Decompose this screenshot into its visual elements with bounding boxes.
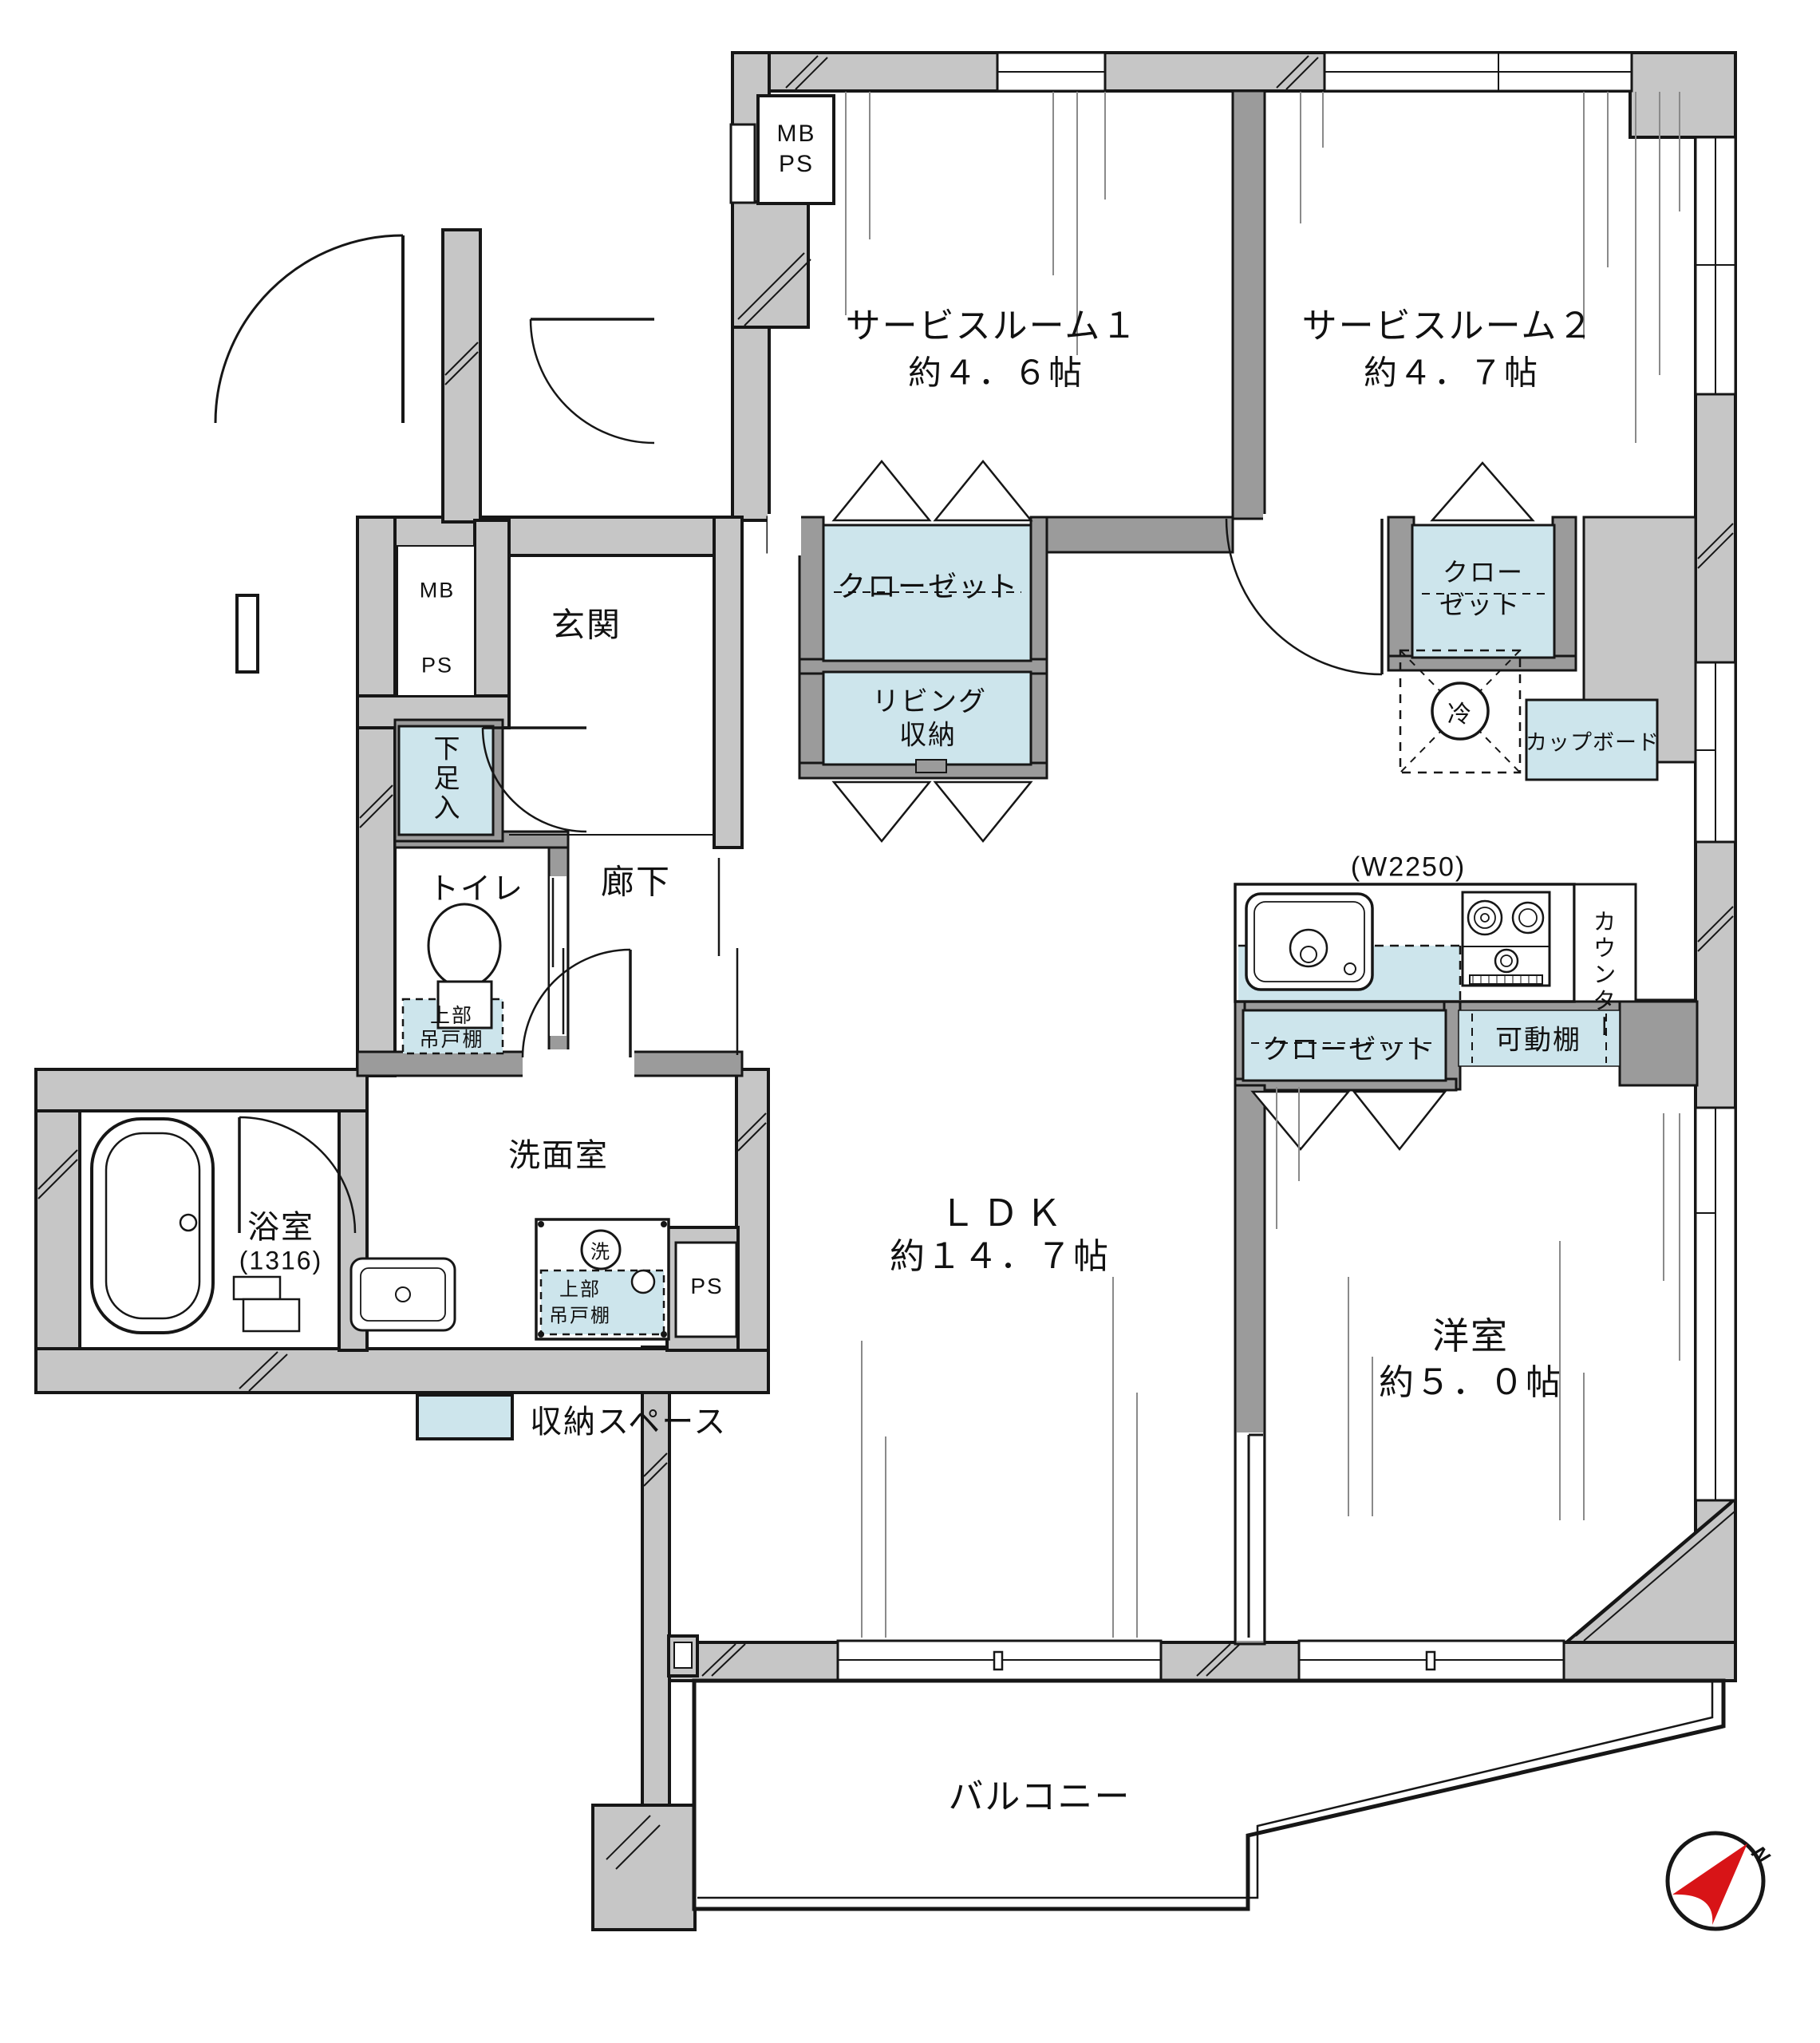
wall-bath-bottom (36, 1349, 768, 1393)
wall-bottom (642, 1642, 1735, 1681)
stove (1463, 892, 1550, 986)
room-label-washroom: 洗面室 (508, 1129, 609, 1176)
washer-cabinet-label-1: 上部 (559, 1274, 601, 1302)
mb-label-entry: MB (420, 579, 456, 603)
bath-faucet (234, 1277, 280, 1299)
room-label-balcony: バルコニー (948, 1768, 1131, 1819)
closet-sr2-label-2: ゼット (1439, 585, 1521, 622)
room-label-bathroom: 浴室 (247, 1201, 314, 1247)
compass (1668, 1833, 1763, 1929)
room-label-entrance: 玄関 (551, 599, 622, 647)
balcony-structure (694, 1681, 1723, 1909)
wall-porch (443, 230, 480, 522)
closet-sr1-label: クローゼット (837, 563, 1019, 605)
room-label-hallway: 廊下 (601, 856, 671, 904)
room-label-western: 洋室 (1432, 1307, 1509, 1360)
room-size-western: 約５．０帖 (1379, 1353, 1562, 1405)
wall-column (593, 1805, 695, 1930)
room-label-service-room-2: サービスルーム２ (1302, 297, 1595, 348)
mbps-box-top (758, 96, 834, 204)
vanity-basin (351, 1259, 455, 1330)
wall-sr1-sr2 (1233, 91, 1265, 519)
entrance-door-arc (215, 235, 403, 423)
wall-corner-diagonal (1566, 1499, 1735, 1642)
wall-washroom-right (736, 1069, 768, 1350)
wall-bath-left (36, 1069, 80, 1393)
legend-swatch (417, 1395, 512, 1439)
porch-fence (237, 595, 258, 672)
closet-west-label: クローゼット (1262, 1028, 1435, 1067)
wall-mbps-right (475, 520, 509, 701)
room-size-service-room-1: 約４．６帖 (908, 346, 1084, 395)
window-details (838, 53, 1735, 1670)
wall-hall-right (714, 517, 742, 848)
floor-plan: MB PS サービスルーム１ 約４．６帖 サービスルーム２ 約４．７帖 クローゼ… (0, 0, 1820, 2043)
legend-label: 収納スペース (530, 1396, 727, 1442)
ps-label-entry: PS (421, 654, 453, 678)
room-size-service-room-2: 約４．７帖 (1364, 346, 1539, 395)
mb-label-top: MB (777, 121, 816, 148)
room-label-toilet: トイレ (428, 864, 524, 908)
toilet-cabinet-label-2: 吊戸棚 (419, 1024, 484, 1053)
window-left-small (731, 124, 755, 203)
room-size-ldk: 約１４．７帖 (890, 1227, 1110, 1278)
wall-corner-ne (1630, 53, 1735, 137)
washer-label: 洗 (590, 1236, 611, 1264)
living-storage-label-2: 収納 (899, 713, 957, 753)
refrigerator-label: 冷 (1447, 694, 1473, 729)
room-label-service-room-1: サービスルーム１ (846, 297, 1139, 348)
movable-shelf-label: 可動棚 (1495, 1018, 1581, 1057)
room-size-bathroom: (1316) (239, 1247, 323, 1276)
balcony-outline (694, 1681, 1723, 1909)
ps-label-washroom: PS (690, 1274, 723, 1299)
cupboard-label: カップボード (1526, 725, 1660, 757)
kitchen-width-label: (W2250) (1351, 852, 1466, 883)
washer-cabinet-label-2: 吊戸棚 (549, 1300, 611, 1328)
shoe-box-label: 下足入 (425, 735, 464, 824)
closet-sr2-label-1: クロー (1443, 552, 1524, 589)
wall-wedge (732, 202, 808, 327)
ps-label-top: PS (779, 151, 814, 178)
kitchen-sink (1246, 894, 1372, 990)
counter-label: カウンター (1585, 910, 1619, 1041)
wall-bath-top (36, 1069, 367, 1111)
wall-entry-left (357, 517, 395, 1076)
washroom-door (523, 950, 630, 1057)
